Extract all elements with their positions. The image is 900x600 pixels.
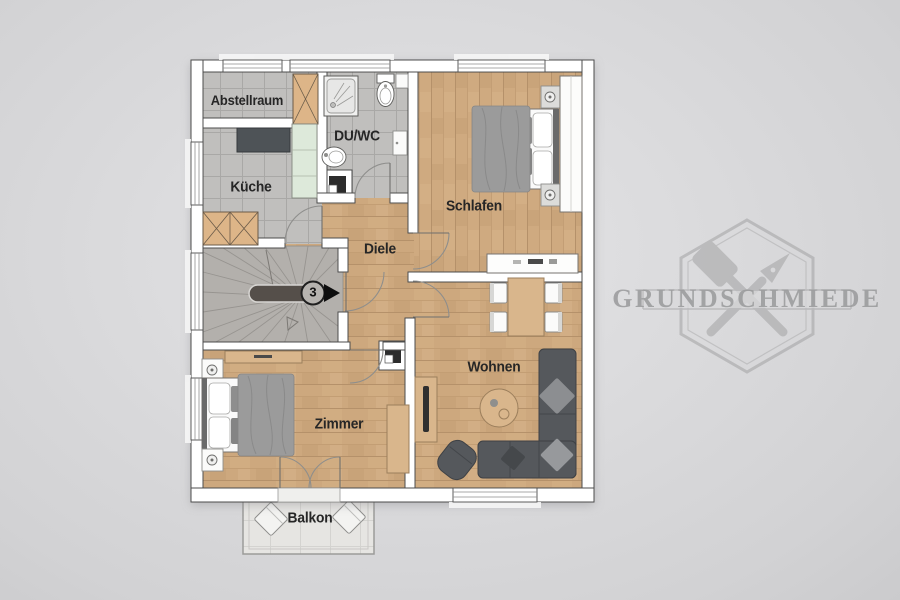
- nightstand-icon: [541, 86, 560, 108]
- coffee-table-icon: [480, 389, 518, 427]
- tv-icon: [423, 386, 429, 432]
- balcony-door-threshold: [278, 488, 340, 502]
- room-label-abstellraum: Abstellraum: [211, 92, 283, 108]
- desk-icon: [387, 405, 409, 473]
- sideboard-icon: [487, 254, 578, 273]
- storage-cabinet-icon: [293, 74, 318, 124]
- room-label-wohnen: Wohnen: [467, 359, 520, 376]
- kitchen-base-cabinet-icon: [203, 212, 258, 245]
- dining-table-icon: [508, 278, 544, 336]
- room-label-du-wc: DU/WC: [334, 128, 380, 145]
- room-label-schlafen: Schlafen: [446, 198, 502, 215]
- stairs-up-arrow-icon: [324, 284, 340, 302]
- double-bed-icon: [202, 374, 294, 456]
- corner-shelf-icon: [396, 74, 408, 88]
- floorplan-image: Abstellraum Küche DU/WC Schlafen Diele Z…: [0, 0, 900, 600]
- watermark-brand: GRUNDSCHMIEDE: [612, 284, 881, 314]
- nightstand-icon: [202, 449, 223, 471]
- kitchen-tall-unit-icon: [292, 124, 317, 198]
- wardrobe-icon: [560, 76, 582, 212]
- stair-number-badge: 3: [301, 281, 326, 306]
- room-label-zimmer: Zimmer: [315, 416, 364, 433]
- double-bed-icon: [472, 106, 559, 192]
- toilet-icon: [377, 74, 394, 107]
- tv-board-icon: [415, 377, 437, 442]
- shower-icon: [324, 76, 358, 116]
- nightstand-icon: [541, 184, 560, 206]
- bathroom-cabinet-icon: [393, 131, 407, 155]
- sideboard-icon: [225, 351, 302, 363]
- kitchen-counter-icon: [237, 128, 290, 152]
- room-label-diele: Diele: [364, 241, 396, 258]
- plan-slab: [185, 54, 594, 508]
- room-label-kueche: Küche: [230, 179, 271, 196]
- sink-icon: [322, 147, 346, 167]
- room-label-balkon: Balkon: [288, 510, 333, 527]
